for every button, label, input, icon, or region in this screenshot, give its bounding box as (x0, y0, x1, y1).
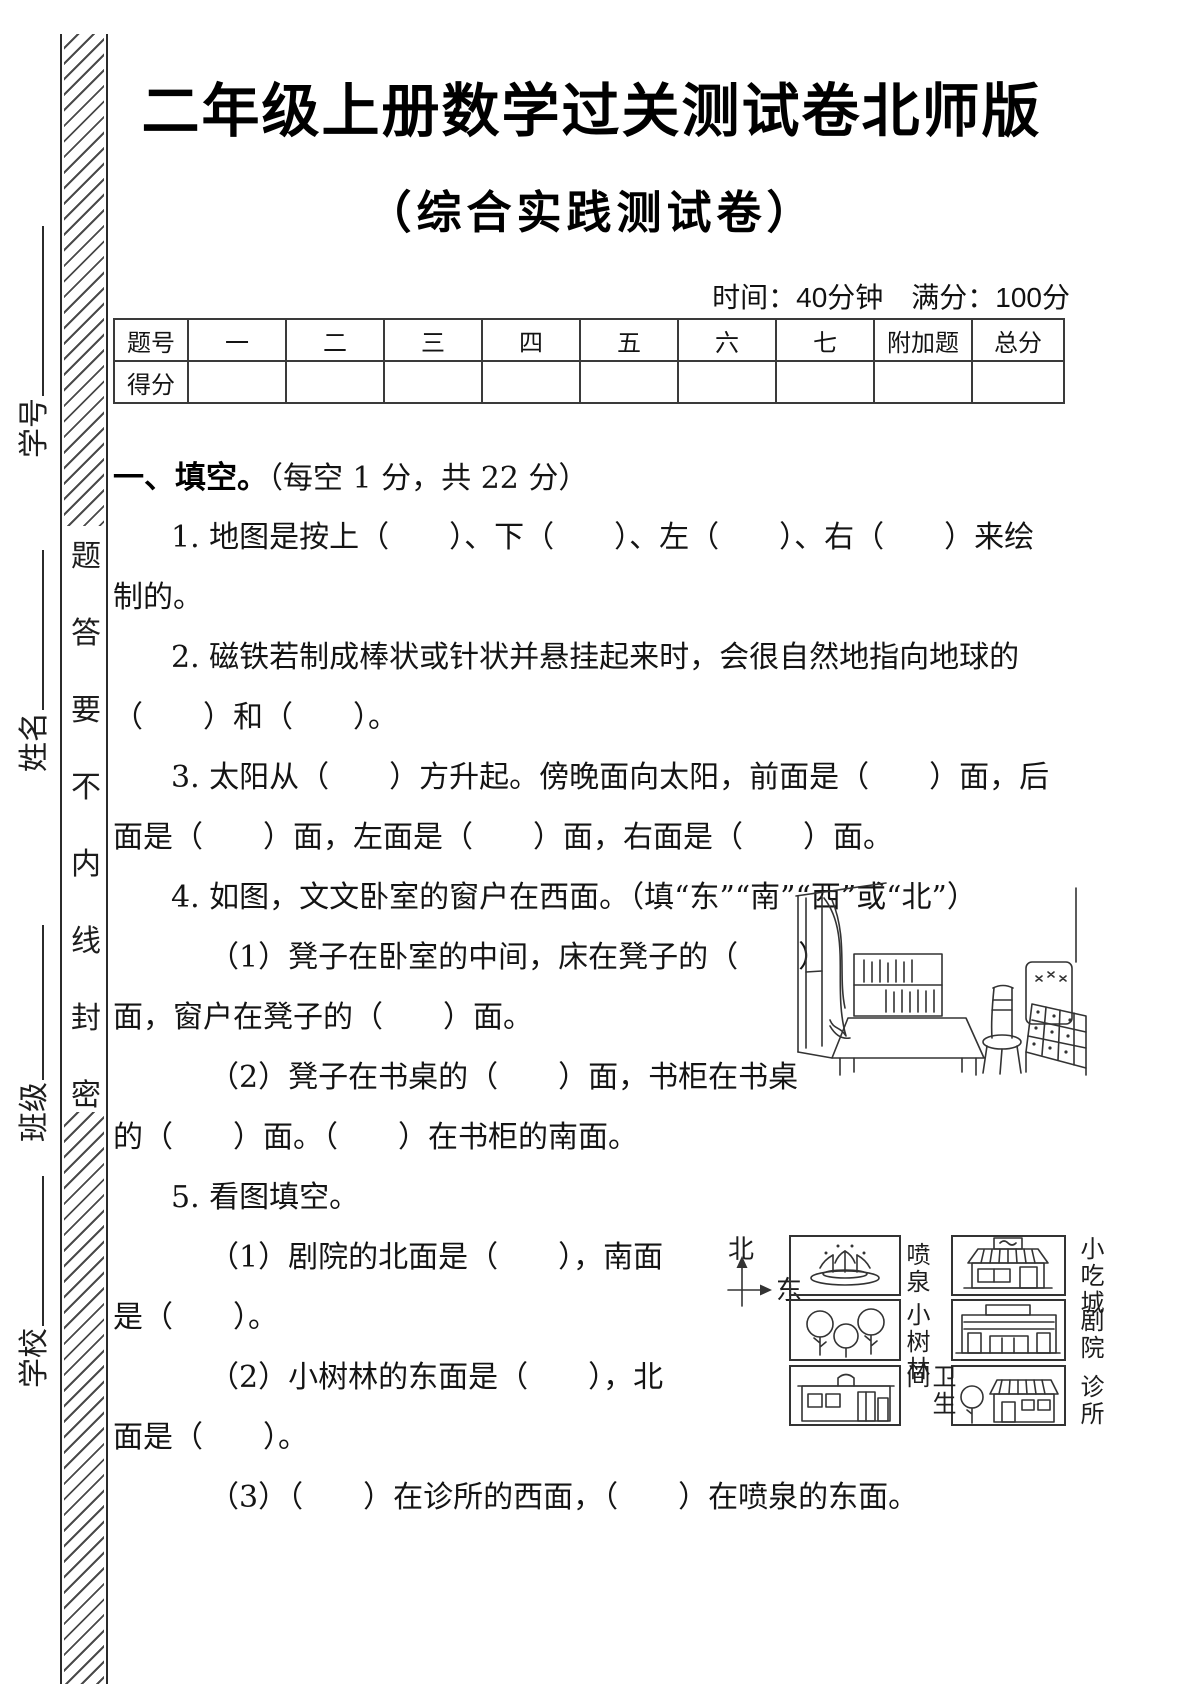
blank-line (12, 550, 44, 710)
bedroom-illustration (788, 876, 1088, 1076)
theater-box (952, 1300, 1065, 1360)
map-illustration: 北 东 (650, 1228, 1110, 1443)
question-1-line: 制的。 (113, 568, 1071, 628)
table-header-cell: 二 (286, 319, 384, 361)
score-cell (188, 361, 286, 403)
blank-line (12, 1176, 44, 1326)
score-cell (776, 361, 874, 403)
page-title: 二年级上册数学过关测试卷北师版 (113, 64, 1070, 148)
seal-text-char: 不 (63, 771, 109, 805)
table-header-cell: 四 (482, 319, 580, 361)
student-name-field: 姓名 (12, 527, 54, 772)
blank-line (12, 226, 44, 396)
time-score-info: 时间：40分钟 满分：100分 (113, 276, 1070, 316)
wall-cornice (796, 883, 886, 896)
seal-text-char: 封 (63, 1002, 109, 1036)
section-heading: 一、填空。（每空 1 分，共 22 分） (113, 448, 1071, 508)
score-cell (580, 361, 678, 403)
woods-icon (807, 1309, 884, 1357)
class-label: 班级 (17, 1082, 52, 1142)
question-4-2-line: 的（ ）面。（ ）在书柜的南面。 (113, 1108, 1071, 1168)
snack-city-icon (964, 1238, 1052, 1288)
score-cell (384, 361, 482, 403)
score-cell (874, 361, 972, 403)
bed (1026, 962, 1072, 1024)
chair (992, 988, 994, 1038)
table-header-cell: 七 (776, 319, 874, 361)
restroom-icon (798, 1375, 894, 1422)
snack-city-box (952, 1236, 1065, 1295)
map-label-theater: 剧院 (1077, 1308, 1103, 1362)
clinic-icon (961, 1380, 1058, 1423)
score-table-score-row: 得分 (114, 361, 1064, 403)
theater-icon (956, 1305, 1060, 1353)
student-name-label: 姓名 (17, 712, 52, 772)
seal-line-inner (60, 34, 62, 1684)
clinic-box (952, 1366, 1065, 1425)
desk (832, 1018, 984, 1058)
seal-text-char: 答 (63, 617, 109, 651)
blank-line (12, 925, 44, 1080)
question-5-3-line: （3）（ ）在诊所的西面，（ ）在喷泉的东面。 (113, 1468, 1071, 1528)
table-header-cell: 附加题 (874, 319, 972, 361)
map-label-fountain: 喷泉 (903, 1242, 929, 1296)
woods-box (790, 1300, 900, 1360)
school-field: 学校 (12, 1153, 54, 1388)
student-number-label: 学号 (17, 398, 52, 458)
question-2-line: 2. 磁铁若制成棒状或针状并悬挂起来时，会很自然地指向地球的 (113, 628, 1071, 688)
compass-north-label: 北 (728, 1235, 754, 1265)
seal-text-char: 密 (63, 1079, 109, 1113)
table-header-cell: 三 (384, 319, 482, 361)
table-header-cell: 总分 (972, 319, 1064, 361)
map-label-restroom: 卫生间 (903, 1364, 955, 1443)
map-label-clinic: 诊所 (1077, 1374, 1103, 1428)
question-1-line: 1. 地图是按上（ ）、下（ ）、左（ ）、右（ ）来绘 (113, 508, 1071, 568)
table-header-cell: 题号 (114, 319, 188, 361)
fountain-icon (811, 1251, 879, 1285)
question-3-line: 3. 太阳从（ ）方升起。傍晚面向太阳，前面是（ ）面，后 (113, 748, 1071, 808)
map-label-snack-city: 小吃城 (1077, 1236, 1103, 1317)
seal-text-char: 内 (63, 848, 109, 882)
seal-text-char: 题 (63, 540, 109, 574)
table-header-cell: 五 (580, 319, 678, 361)
score-cell (286, 361, 384, 403)
seal-text-char: 线 (63, 925, 109, 959)
table-header-cell: 一 (188, 319, 286, 361)
seal-hatch-top (64, 34, 104, 526)
section-heading-note: （每空 1 分，共 22 分） (268, 461, 588, 496)
student-number-field: 学号 (12, 203, 54, 458)
score-row-label: 得分 (114, 361, 188, 403)
score-cell (972, 361, 1064, 403)
question-5-intro: 5. 看图填空。 (113, 1168, 1071, 1228)
table-header-cell: 六 (678, 319, 776, 361)
score-table: 题号 一 二 三 四 五 六 七 附加题 总分 得分 (113, 318, 1065, 404)
section-heading-bold: 一、填空。 (113, 460, 268, 495)
score-cell (678, 361, 776, 403)
score-cell (482, 361, 580, 403)
seal-text-char: 要 (63, 694, 109, 728)
question-3-line: 面是（ ）面，左面是（ ）面，右面是（ ）面。 (113, 808, 1071, 868)
score-table-header-row: 题号 一 二 三 四 五 六 七 附加题 总分 (114, 319, 1064, 361)
question-2-line: （ ）和（ ）。 (113, 688, 1071, 748)
test-paper-page: 题 答 要 不 内 线 封 密 学号 姓名 班级 学校 二年级上册数学过关测试卷… (0, 0, 1191, 1684)
school-label: 学校 (17, 1328, 52, 1388)
seal-hatch-bottom (64, 1112, 104, 1684)
class-field: 班级 (12, 902, 54, 1142)
page-subtitle: （综合实践测试卷） (113, 176, 1070, 241)
